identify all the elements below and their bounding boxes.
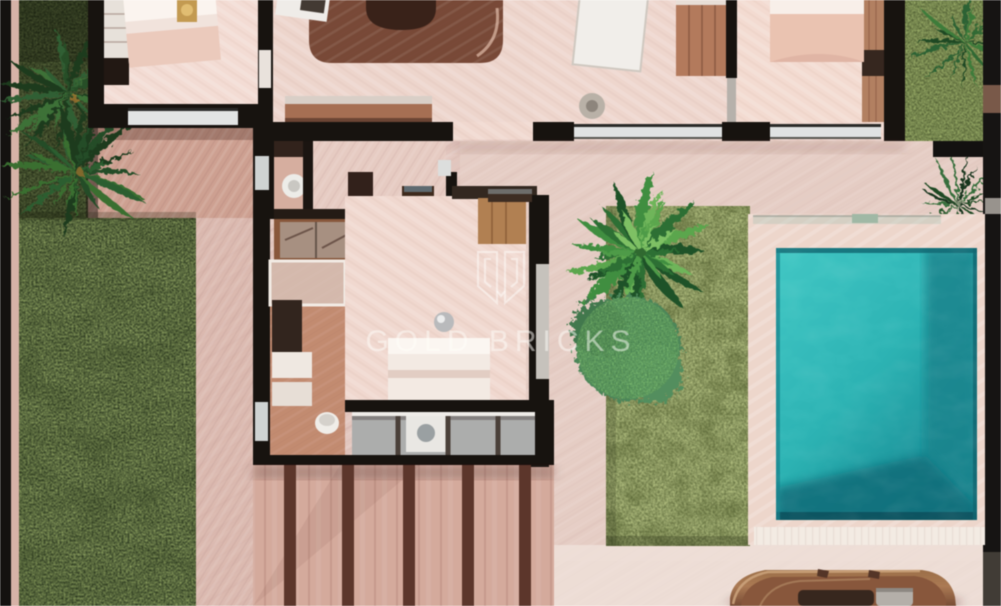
svg-text:GOLD BRICKS: GOLD BRICKS [365,325,636,358]
